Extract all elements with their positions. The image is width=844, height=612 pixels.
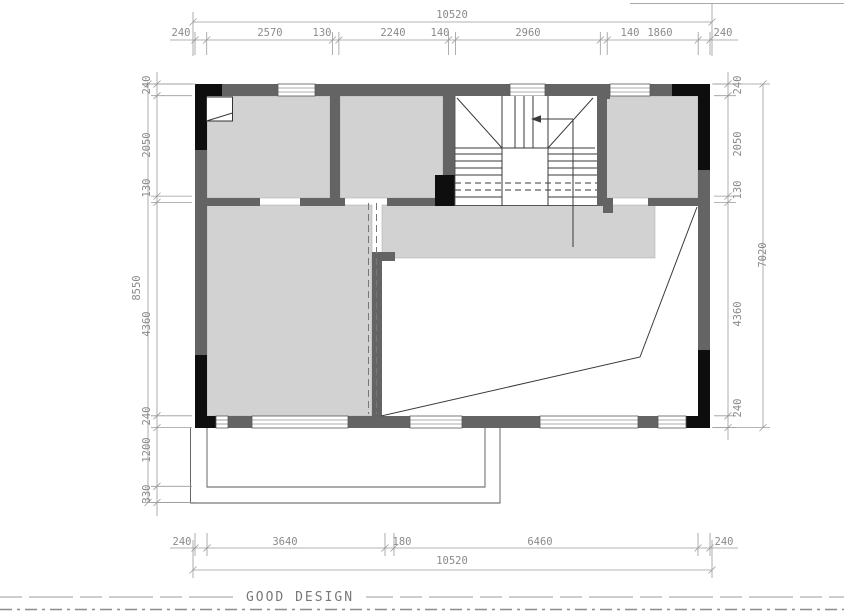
dim-label: 240 [173, 536, 192, 548]
dim-label: 1200 [141, 437, 153, 462]
dim-label: 240 [714, 27, 733, 39]
floor-plan-svg: 10520 240 2570 130 2240 140 2960 140 186… [0, 0, 844, 612]
room-bottom-left [207, 205, 372, 416]
drawing-sheet: 10520 240 2570 130 2240 140 2960 140 186… [0, 0, 844, 612]
dim-label: 2240 [380, 27, 405, 39]
footer-brand: GOOD DESIGN [246, 590, 354, 605]
dim-label: 2050 [732, 131, 744, 156]
dim-label: 1860 [647, 27, 672, 39]
room-top-middle [340, 96, 443, 198]
dim-label: 130 [732, 181, 744, 200]
dim-label: 2570 [257, 27, 282, 39]
dim-label: 3640 [272, 536, 297, 548]
dim-label: 4360 [732, 301, 744, 326]
footer: GOOD DESIGN [0, 588, 844, 610]
dim-label: 180 [393, 536, 412, 548]
dim-label: 240 [715, 536, 734, 548]
dim-label: 240 [172, 27, 191, 39]
dim-label: 10520 [436, 9, 468, 21]
door-symbol [207, 97, 233, 121]
room-top-right [600, 96, 698, 198]
dim-label: 2050 [141, 132, 153, 157]
dim-label: 6460 [527, 536, 552, 548]
dim-label: 240 [141, 76, 153, 95]
dim-label: 140 [621, 27, 640, 39]
floor-plan [191, 84, 711, 503]
dim-label: 4360 [141, 311, 153, 336]
balcony-outline [191, 428, 501, 503]
dim-label: 240 [732, 399, 744, 418]
dim-label: 7020 [757, 242, 769, 267]
dim-label: 240 [141, 407, 153, 426]
dim-label: 330 [141, 485, 153, 504]
dim-label: 130 [313, 27, 332, 39]
dim-label: 240 [732, 76, 744, 95]
dim-label: 130 [141, 179, 153, 198]
dim-label: 8550 [131, 275, 143, 300]
dim-label: 140 [431, 27, 450, 39]
dim-label: 10520 [436, 555, 468, 567]
dim-label: 2960 [515, 27, 540, 39]
corridor-landing [382, 205, 655, 258]
